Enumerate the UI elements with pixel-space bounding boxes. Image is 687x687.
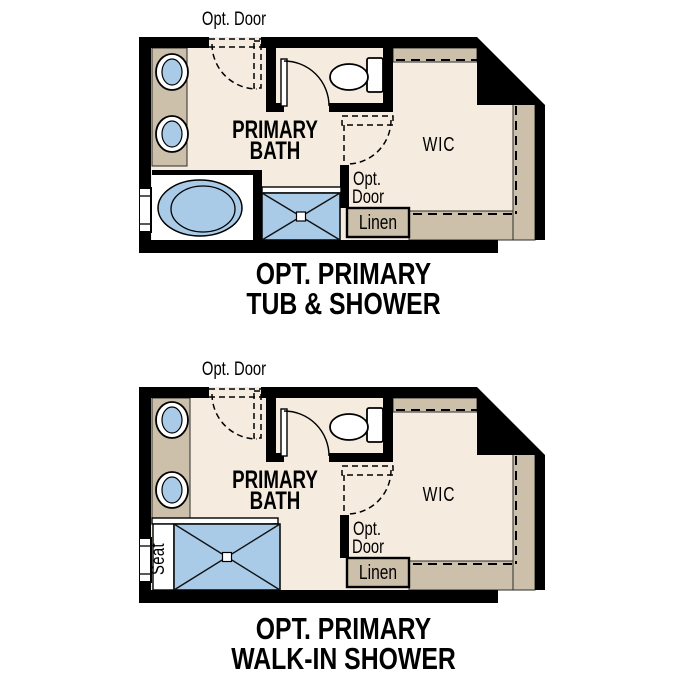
sink-1	[156, 54, 188, 90]
wic-shelf-bottom	[409, 561, 513, 590]
plan-title-walkin-shower: OPT. PRIMARY WALK-IN SHOWER	[69, 614, 619, 674]
wall-bevel-corner	[477, 387, 545, 455]
wall-right	[535, 105, 545, 240]
wall-wic-partition	[340, 515, 349, 558]
primary-bath-label-line2: BATH	[250, 136, 301, 164]
title-line1: OPT. PRIMARY	[69, 614, 619, 644]
toilet-door-leaf	[281, 59, 287, 106]
wall-toilet-left	[266, 387, 276, 460]
title-line1: OPT. PRIMARY	[69, 259, 619, 289]
wic-label: WIC	[423, 133, 456, 155]
plan-title-tub-shower: OPT. PRIMARY TUB & SHOWER	[69, 259, 619, 319]
wall-toilet-right	[383, 387, 393, 462]
linen-label: Linen	[359, 211, 397, 233]
linen-label: Linen	[359, 561, 397, 583]
opt-door-mid-label-line2: Door	[352, 536, 384, 557]
shower	[262, 187, 341, 240]
wall-bottom	[139, 590, 498, 603]
title-line2: TUB & SHOWER	[69, 289, 619, 319]
floorplan-canvas: Opt. Door PRIMARY BATH WIC Opt. Door Lin…	[0, 0, 687, 687]
opt-door-top-label: Opt. Door	[202, 358, 266, 379]
wall-toilet-right	[383, 37, 393, 112]
title-line2: WALK-IN SHOWER	[69, 644, 619, 674]
wall-top-right	[261, 387, 477, 398]
wall-top-right	[261, 37, 477, 48]
bathtub	[158, 180, 242, 236]
seat-label: Seat	[147, 543, 168, 575]
toilet-tank	[367, 58, 383, 92]
wic-label: WIC	[423, 483, 456, 505]
shower-drain	[297, 212, 306, 221]
toilet-tank	[367, 408, 383, 442]
wall-right	[535, 455, 545, 590]
wall-bevel-corner	[477, 37, 545, 105]
sink-1	[156, 402, 188, 438]
shower-glass	[152, 518, 278, 524]
wic-shelf-bottom	[409, 211, 513, 240]
shower-glass	[262, 187, 341, 193]
walkin-shower	[152, 518, 280, 590]
sink-2	[156, 472, 188, 508]
toilet-bowl	[330, 414, 368, 440]
window	[139, 188, 151, 232]
primary-bath-label-line2: BATH	[250, 486, 301, 514]
wall-tub-shower-divider	[253, 170, 262, 240]
wall-bottom	[139, 240, 498, 253]
toilet-bowl	[330, 64, 368, 90]
opt-door-mid-label-line2: Door	[352, 186, 384, 207]
toilet-door-leaf	[281, 409, 287, 456]
opt-door-top-label: Opt. Door	[202, 8, 266, 29]
wall-toilet-left	[266, 37, 276, 110]
floorplan-tub-shower: Opt. Door PRIMARY BATH WIC Opt. Door Lin…	[139, 5, 545, 253]
shower-drain	[223, 553, 232, 562]
sink-2	[156, 116, 188, 152]
wall-tub-divider-line	[152, 170, 253, 175]
floorplan-walkin-shower: Opt. Door PRIMARY BATH WIC Opt. Door Lin…	[139, 355, 545, 603]
